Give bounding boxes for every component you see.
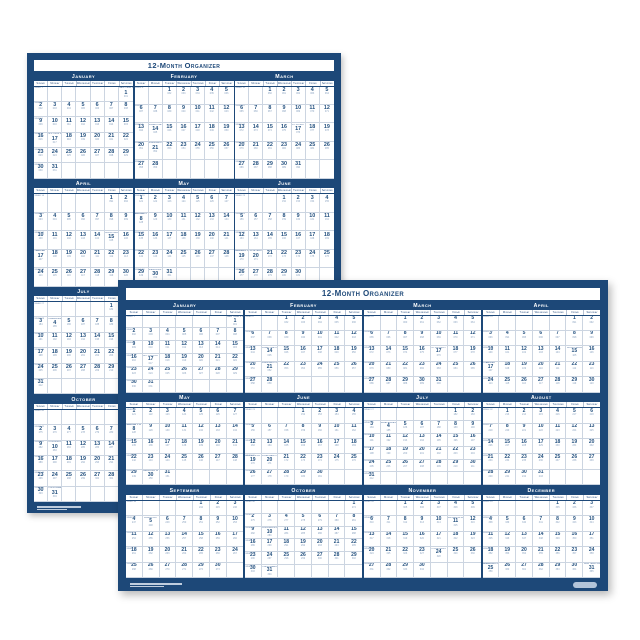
- weekday-label: Saturday: [321, 188, 334, 193]
- day-cell: 14104: [91, 231, 105, 249]
- week-number: Week 4: [127, 355, 135, 357]
- weekday-label: Friday: [567, 402, 584, 407]
- day-cell: 17168: [329, 439, 346, 454]
- day-cell: [533, 316, 550, 331]
- day-cell: 27117: [76, 268, 90, 286]
- day-cell: 17321: [431, 532, 448, 547]
- week-number: Week 21: [127, 440, 136, 442]
- julian-date: 062: [437, 322, 441, 325]
- julian-date: 095: [67, 219, 71, 222]
- julian-date: 270: [165, 569, 169, 572]
- day-cell: 24083: [292, 142, 306, 160]
- day-cell: 28028: [210, 367, 227, 380]
- julian-date: 058: [139, 167, 143, 170]
- julian-date: 292: [81, 462, 85, 465]
- julian-date: 152: [282, 201, 286, 204]
- julian-date: 036: [352, 322, 356, 325]
- day-cell: 19109: [516, 362, 533, 377]
- julian-date: 138: [181, 238, 185, 241]
- day-cell: 8159: [295, 424, 312, 439]
- day-cell: 31090: [431, 377, 448, 392]
- weekday-label: Sunday: [135, 188, 149, 193]
- julian-date: 212: [370, 478, 374, 481]
- day-cell: 29302: [345, 552, 362, 565]
- julian-date: 147: [216, 460, 220, 463]
- julian-date: 311: [386, 522, 390, 525]
- day-cell: 20201: [414, 447, 431, 460]
- day-cell: Halloween31304: [48, 487, 62, 502]
- month-header: March: [235, 73, 334, 81]
- day-cell: 24358: [583, 547, 600, 562]
- julian-date: 318: [386, 538, 390, 541]
- day-cell: 2033: [295, 316, 312, 331]
- day-cell: Week 4820324: [364, 547, 381, 562]
- day-cell: 24144: [160, 454, 177, 469]
- weekday-label: Friday: [105, 81, 119, 86]
- weekday-label: Monday: [143, 402, 160, 407]
- weekday-label: Saturday: [346, 402, 362, 407]
- day-cell: Good Friday15105: [105, 231, 119, 249]
- day-cell: 22265: [193, 547, 210, 562]
- julian-date: 207: [403, 466, 407, 469]
- julian-date: 123: [167, 201, 171, 204]
- julian-date: 096: [539, 337, 543, 340]
- week-number: Week 17: [35, 250, 44, 252]
- day-cell: Halloween31304: [262, 565, 279, 578]
- julian-date: 149: [132, 476, 136, 479]
- day-cell: 12012: [176, 341, 193, 354]
- julian-date: 081: [268, 148, 272, 151]
- day-cell: 4308: [448, 501, 465, 516]
- day-cell: 27300: [91, 471, 105, 486]
- julian-date: 358: [590, 553, 594, 556]
- weekday-label: Tuesday: [63, 81, 77, 86]
- julian-date: 047: [181, 130, 185, 133]
- julian-date: 176: [325, 256, 329, 259]
- julian-date: 265: [199, 553, 203, 556]
- day-cell: 13013: [193, 341, 210, 354]
- day-cell: 29088: [397, 377, 414, 392]
- day-cell: 30364: [566, 563, 583, 578]
- julian-date: 124: [181, 201, 185, 204]
- day-cell: 29119: [105, 268, 119, 286]
- day-cell: [295, 377, 312, 392]
- day-cell: 6157: [262, 424, 279, 439]
- week-number: Week 37: [127, 517, 136, 519]
- julian-date: 031: [149, 386, 153, 389]
- julian-date: 013: [95, 124, 99, 127]
- julian-date: 172: [268, 256, 272, 259]
- julian-date: 027: [95, 155, 99, 158]
- day-cell: 28028: [105, 148, 119, 163]
- julian-date: 056: [335, 368, 339, 371]
- julian-date: 291: [284, 545, 288, 548]
- weekday-label: Friday: [306, 81, 320, 86]
- julian-date: 225: [590, 430, 594, 433]
- weekday-label: Wednesday: [414, 402, 431, 407]
- julian-date: 139: [199, 445, 203, 448]
- weekday-label: Thursday: [91, 81, 105, 86]
- julian-date: 208: [81, 370, 85, 373]
- day-cell: 30334: [414, 563, 431, 578]
- julian-date: 251: [199, 522, 203, 525]
- julian-date: 237: [556, 460, 560, 463]
- day-cell: St. Patrick's Day17076: [292, 123, 306, 141]
- day-cell: Week 6: [135, 87, 149, 105]
- day-cell: 28059: [149, 160, 163, 178]
- julian-date: 359: [489, 571, 493, 574]
- day-cell: 8039: [163, 105, 177, 123]
- day-cell: 25298: [62, 471, 76, 486]
- day-cell: 5186: [397, 421, 414, 434]
- day-cell: 28059: [262, 377, 279, 392]
- julian-date: 302: [352, 558, 356, 561]
- julian-date: 264: [182, 553, 186, 556]
- julian-date: 105: [109, 240, 113, 243]
- julian-date: 337: [590, 507, 594, 510]
- weekday-label: Saturday: [120, 81, 133, 86]
- julian-date: 067: [403, 337, 407, 340]
- day-cell: 2122: [143, 408, 160, 423]
- weekday-label: Saturday: [227, 402, 243, 407]
- day-cell: 17137: [160, 439, 177, 454]
- day-cell: 28087: [249, 160, 263, 178]
- weekday-label: Tuesday: [160, 495, 177, 500]
- julian-date: 024: [149, 373, 153, 376]
- julian-date: 209: [95, 370, 99, 373]
- day-cell: Week 23: [245, 408, 262, 423]
- julian-date: 293: [318, 545, 322, 548]
- day-cell: Week 76037: [135, 105, 149, 123]
- weekday-label: Friday: [306, 188, 320, 193]
- day-cell: 28179: [278, 470, 295, 485]
- months-grid: JanuarySundayMondayTuesdayWednesdayThurs…: [126, 302, 600, 579]
- day-cell: 18230: [550, 439, 567, 454]
- day-cell: Presidents' Day21052: [149, 142, 163, 160]
- day-cell: [160, 380, 177, 393]
- wall-calendar-landscape: 12-Month Organizer JanuarySundayMondayTu…: [118, 280, 608, 591]
- julian-date: 091: [109, 201, 113, 204]
- julian-date: 327: [420, 553, 424, 556]
- day-cell: 12285: [295, 527, 312, 540]
- julian-date: 208: [420, 466, 424, 469]
- julian-date: 151: [165, 476, 169, 479]
- weekday-label: Sunday: [34, 81, 48, 86]
- day-cell: 7188: [91, 317, 105, 332]
- julian-date: 201: [420, 453, 424, 456]
- day-cell: [210, 470, 227, 485]
- day-cell: 11162: [320, 213, 334, 231]
- julian-date: 096: [81, 219, 85, 222]
- day-cell: 2092: [119, 194, 133, 212]
- julian-date: 143: [153, 256, 157, 259]
- julian-date: 030: [39, 170, 43, 173]
- julian-date: 279: [95, 432, 99, 435]
- day-cell: Week 1027058: [245, 377, 262, 392]
- day-cell: 11101: [499, 346, 516, 361]
- julian-date: 028: [109, 155, 113, 158]
- julian-date: 305: [403, 507, 407, 510]
- day-cell: 4124: [177, 194, 191, 212]
- julian-date: 179: [284, 476, 288, 479]
- julian-date: 181: [296, 275, 300, 278]
- julian-date: 204: [471, 453, 475, 456]
- julian-date: 061: [420, 322, 424, 325]
- day-cell: 25084: [306, 142, 320, 160]
- day-cell: 24175: [329, 454, 346, 469]
- day-cell: 26057: [219, 142, 233, 160]
- day-cell: 6006: [91, 102, 105, 117]
- week-number: Week 10: [236, 87, 245, 89]
- day-cell: 9099: [583, 331, 600, 346]
- weekday-label: Monday: [149, 188, 163, 193]
- weekday-label: Thursday: [550, 495, 567, 500]
- day-cell: Week 53Christmas Day25359: [483, 563, 500, 578]
- julian-date: 183: [471, 414, 475, 417]
- weekday-label: Friday: [329, 402, 346, 407]
- julian-date: 130: [165, 430, 169, 433]
- julian-date: 290: [268, 545, 272, 548]
- julian-date: 058: [251, 383, 255, 386]
- day-cell: 18291: [62, 456, 76, 471]
- day-cell: 25115: [499, 377, 516, 392]
- week-number: Week 52: [483, 548, 492, 550]
- day-cell: Week 3231212: [364, 472, 381, 485]
- julian-date: 083: [296, 148, 300, 151]
- julian-date: 077: [453, 352, 457, 355]
- julian-date: 238: [572, 460, 576, 463]
- day-cell: [329, 501, 346, 514]
- julian-date: 205: [39, 370, 43, 373]
- day-cell: 15258: [193, 532, 210, 547]
- day-cell: 14165: [263, 231, 277, 249]
- day-cell: 9129: [143, 424, 160, 439]
- julian-date: 312: [403, 522, 407, 525]
- day-cell: [48, 302, 62, 317]
- day-cell: 3034: [312, 316, 329, 331]
- julian-date: 169: [325, 238, 329, 241]
- day-cell: 17137: [163, 231, 177, 249]
- julian-date: 158: [268, 219, 272, 222]
- day-cell: 10222: [533, 424, 550, 439]
- day-cell: [414, 408, 431, 421]
- week-number: Week 38: [127, 532, 136, 534]
- day-cell: Week 1610100: [483, 346, 500, 361]
- weekday-label: Wednesday: [77, 81, 91, 86]
- julian-date: 005: [182, 334, 186, 337]
- julian-date: 080: [254, 148, 258, 151]
- day-cell: 21202: [91, 348, 105, 363]
- julian-date: 114: [489, 383, 493, 386]
- day-cell: Week 374247: [126, 516, 143, 531]
- day-cell: 3123: [160, 408, 177, 423]
- day-cell: 5064: [464, 316, 481, 331]
- weekday-label: Wednesday: [296, 310, 313, 315]
- julian-date: 199: [386, 453, 390, 456]
- julian-date: 044: [251, 352, 255, 355]
- day-cell: 7158: [278, 424, 295, 439]
- weekday-label: Wednesday: [533, 310, 550, 315]
- week-number: Week 7: [245, 331, 253, 333]
- week-number: Week 6: [127, 380, 135, 382]
- day-cell: Week 416016: [126, 354, 143, 367]
- week-number: Week 25: [236, 232, 245, 234]
- julian-date: 105: [572, 355, 576, 358]
- day-cell: [62, 163, 76, 178]
- day-cell: [62, 302, 76, 317]
- week-number: Week 35: [483, 455, 492, 457]
- weekday-label: Monday: [500, 310, 517, 315]
- julian-date: 217: [572, 414, 576, 417]
- week-number: Week 36: [127, 501, 136, 503]
- day-cell: 21141: [219, 231, 233, 249]
- julian-date: 078: [325, 130, 329, 133]
- day-cell: 28301: [105, 471, 119, 486]
- day-cell: 22022: [227, 354, 244, 367]
- day-cell: [345, 470, 362, 485]
- day-cell: 1060: [263, 87, 277, 105]
- week-number: Week 30: [364, 447, 373, 449]
- day-cell: 25176: [345, 454, 362, 469]
- weeks-grid: Week 1010602061306240635064Week 11606570…: [235, 87, 334, 179]
- day-cell: 20293: [312, 539, 329, 552]
- day-cell: [516, 316, 533, 331]
- weekday-label: Friday: [206, 81, 220, 86]
- julian-date: 130: [167, 219, 171, 222]
- day-cell: 25176: [320, 250, 334, 268]
- weekday-label: Wednesday: [77, 404, 91, 409]
- day-cell: [48, 194, 62, 212]
- weekday-label: Friday: [211, 402, 228, 407]
- week-number: Week 13: [364, 362, 373, 364]
- week-number: Week 49: [483, 501, 492, 503]
- week-number: Week 31: [364, 460, 373, 462]
- day-cell: [278, 565, 295, 578]
- julian-date: 181: [318, 476, 322, 479]
- day-cell: Week 14: [483, 316, 500, 331]
- day-cell: 9190: [464, 421, 481, 434]
- day-cell: Week 504338: [483, 516, 500, 531]
- julian-date: 018: [67, 139, 71, 142]
- julian-date: 147: [210, 256, 214, 259]
- julian-date: 350: [572, 538, 576, 541]
- julian-date: 338: [489, 522, 493, 525]
- day-cell: 2183: [464, 408, 481, 421]
- julian-date: 013: [199, 347, 203, 350]
- julian-date: 257: [182, 538, 186, 541]
- julian-date: 263: [165, 553, 169, 556]
- julian-date: 150: [149, 478, 153, 481]
- day-cell: 9313: [414, 516, 431, 531]
- julian-date: 113: [590, 368, 594, 371]
- day-cell: 7007: [210, 328, 227, 341]
- day-cell: [306, 160, 320, 178]
- julian-date: 035: [210, 93, 214, 96]
- weekday-label: Saturday: [346, 310, 362, 315]
- weekday-label: Wednesday: [278, 188, 292, 193]
- weekday-label: Tuesday: [516, 310, 533, 315]
- julian-date: 050: [224, 130, 228, 133]
- day-cell: 7066: [249, 105, 263, 123]
- julian-date: 049: [210, 130, 214, 133]
- day-cell: [91, 163, 105, 178]
- julian-date: 099: [590, 337, 594, 340]
- day-cell: [149, 87, 163, 105]
- weekday-label: Saturday: [220, 188, 233, 193]
- day-cell: [414, 472, 431, 485]
- day-cell: 14073: [381, 346, 398, 361]
- day-cell: Week 813044: [135, 123, 149, 141]
- day-cell: Week 1320079: [235, 142, 249, 160]
- julian-date: 234: [505, 460, 509, 463]
- day-cell: Week 5218352: [483, 547, 500, 562]
- day-cell: 13225: [583, 424, 600, 439]
- julian-date: 313: [420, 522, 424, 525]
- day-cell: 17168: [306, 231, 320, 249]
- julian-date: 008: [124, 108, 128, 111]
- day-cell: [210, 380, 227, 393]
- week-number: Week 28: [35, 318, 44, 320]
- julian-date: 206: [53, 370, 57, 373]
- julian-date: 271: [182, 569, 186, 572]
- julian-date: 070: [453, 337, 457, 340]
- julian-date: 322: [453, 538, 457, 541]
- julian-date: 285: [81, 447, 85, 450]
- day-cell: Columbus Day10283: [48, 441, 62, 456]
- day-cell: Week 4025268: [126, 563, 143, 578]
- julian-date: 287: [335, 533, 339, 536]
- weekday-label: Tuesday: [63, 404, 77, 409]
- day-cell: Independence Day4185: [48, 317, 62, 332]
- day-cell: 16167: [312, 439, 329, 454]
- julian-date: 228: [522, 445, 526, 448]
- julian-date: 188: [437, 427, 441, 430]
- day-cell: 17048: [312, 346, 329, 361]
- julian-date: 001: [233, 324, 237, 327]
- julian-date: 316: [471, 522, 475, 525]
- day-cell: [312, 501, 329, 514]
- day-cell: 8189: [105, 317, 119, 332]
- weekday-label: Thursday: [91, 296, 105, 301]
- julian-date: 120: [124, 275, 128, 278]
- julian-date: 085: [325, 148, 329, 151]
- julian-date: 185: [386, 430, 390, 433]
- day-cell: 26360: [499, 563, 516, 578]
- julian-date: 173: [301, 460, 305, 463]
- day-cell: 24055: [191, 142, 205, 160]
- day-cell: 22112: [566, 362, 583, 377]
- week-number: Week 27: [245, 470, 254, 472]
- day-cell: 21325: [381, 547, 398, 562]
- day-cell: New Year's Day1001: [227, 316, 244, 329]
- julian-date: 031: [53, 170, 57, 173]
- week-number: Week 33: [483, 424, 492, 426]
- day-cell: 27117: [533, 377, 550, 392]
- julian-date: 261: [132, 553, 136, 556]
- day-cell: Week 191121: [126, 408, 143, 423]
- julian-date: 102: [522, 352, 526, 355]
- week-number: Week 21: [135, 232, 144, 234]
- julian-date: 098: [572, 337, 576, 340]
- day-cell: 25237: [550, 454, 567, 469]
- week-number: Week 23: [236, 195, 245, 197]
- day-cell: [278, 501, 295, 514]
- julian-date: 187: [420, 427, 424, 430]
- julian-date: 301: [335, 558, 339, 561]
- julian-date: 076: [437, 355, 441, 358]
- weekday-label: Sunday: [245, 310, 262, 315]
- day-cell: 7250: [176, 516, 193, 531]
